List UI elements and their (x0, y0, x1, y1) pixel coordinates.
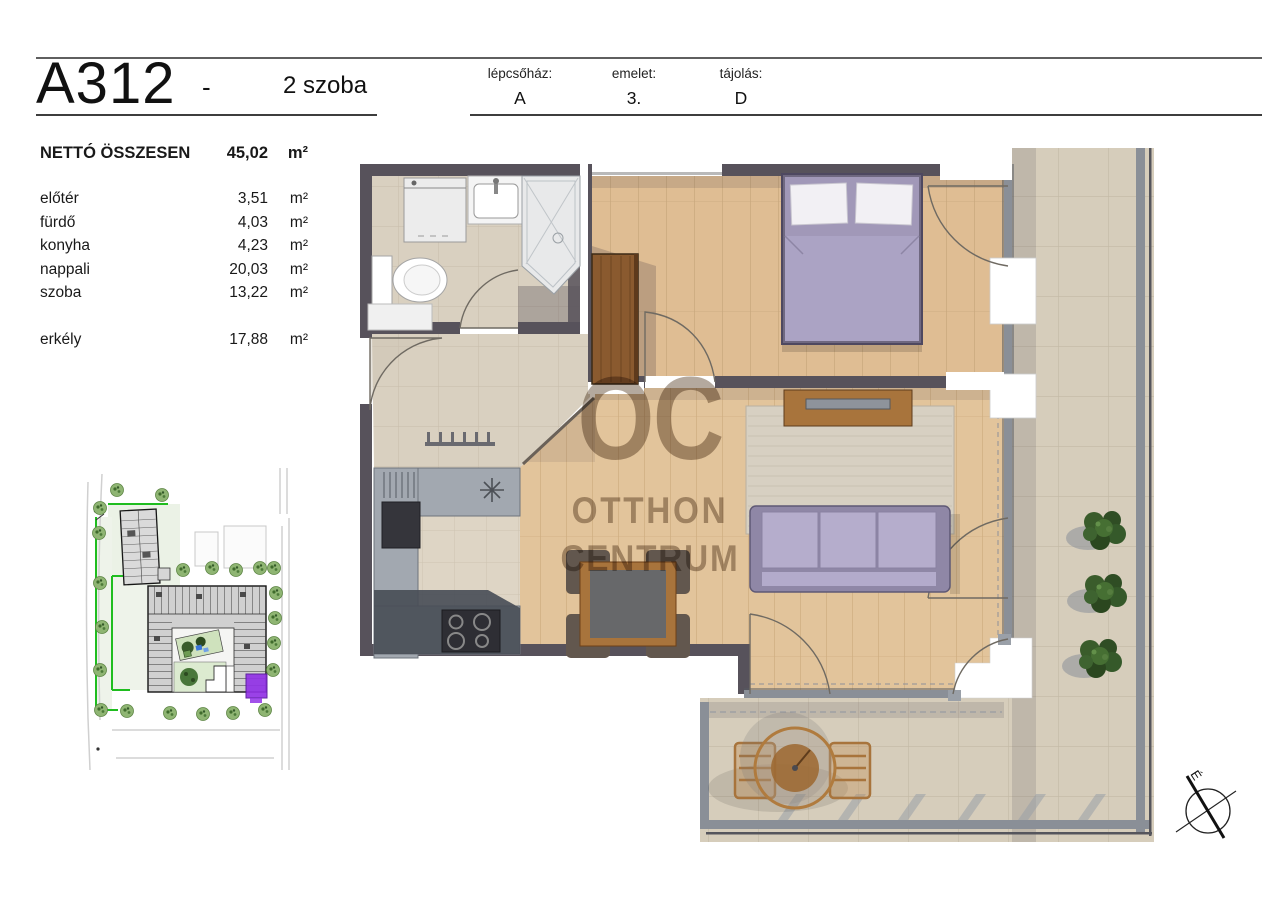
area-row-nappali: nappali 20,03 m² (40, 258, 308, 282)
table-spacer (40, 166, 308, 187)
area-total-value: 45,02 (206, 140, 268, 166)
room-value: 4,03 (206, 211, 268, 235)
room-name: konyha (40, 234, 206, 258)
field-orientation: tájolás: D (680, 66, 802, 109)
room-value: 3,51 (206, 187, 268, 211)
room-value: 4,23 (206, 234, 268, 258)
room-unit: m² (268, 258, 308, 282)
dining-set (566, 550, 690, 658)
stove (442, 610, 500, 652)
room-name: erkély (40, 328, 206, 352)
radiator (425, 442, 495, 446)
field-orientation-label: tájolás: (680, 66, 802, 81)
soundbar (806, 399, 890, 409)
floor-plan (358, 146, 1160, 850)
pillow (855, 183, 912, 225)
header-rule-title (36, 114, 377, 116)
room-name: szoba (40, 281, 206, 305)
north-arrow-compass: É (1160, 740, 1286, 910)
title-separator: - (202, 72, 211, 103)
area-total-label: NETTÓ ÖSSZESEN (40, 140, 206, 166)
bathroom-cabinet (368, 304, 432, 330)
area-row-furdo: fürdő 4,03 m² (40, 211, 308, 235)
table-spacer (40, 305, 308, 328)
room-value: 17,88 (206, 328, 268, 352)
pillow (790, 183, 847, 225)
room-value: 13,22 (206, 281, 268, 305)
area-total-unit: m² (268, 140, 308, 166)
room-unit: m² (268, 234, 308, 258)
wardrobe (592, 254, 638, 384)
field-staircase-label: lépcsőház: (459, 66, 581, 81)
area-row-eloter: előtér 3,51 m² (40, 187, 308, 211)
double-bed (782, 174, 922, 352)
room-unit: m² (268, 187, 308, 211)
neighbor-buildings (195, 526, 266, 568)
field-staircase-value: A (459, 88, 581, 109)
area-row-konyha: konyha 4,23 m² (40, 234, 308, 258)
compass-cross-line (1176, 791, 1236, 832)
room-unit: m² (268, 281, 308, 305)
map-dot (96, 747, 99, 750)
room-name: nappali (40, 258, 206, 282)
area-row-szoba: szoba 13,22 m² (40, 281, 308, 305)
building-a-block (120, 509, 160, 585)
room-value: 20,03 (206, 258, 268, 282)
annex-building (158, 568, 170, 580)
unit-code: A312 (36, 58, 175, 110)
sofa-cushion (820, 512, 876, 568)
field-staircase: lépcsőház: A (459, 66, 581, 109)
field-floor-value: 3. (573, 88, 695, 109)
header-rule-top (36, 57, 1262, 59)
courtyard-garden (174, 662, 226, 692)
header-rule-fields (470, 114, 1262, 116)
north-arrow (1187, 776, 1224, 838)
sofa (750, 506, 960, 594)
room-name: előtér (40, 187, 206, 211)
area-table: NETTÓ ÖSSZESEN 45,02 m² előtér 3,51 m² f… (40, 140, 308, 351)
field-orientation-value: D (680, 88, 802, 109)
toilet (372, 256, 447, 304)
area-total-row: NETTÓ ÖSSZESEN 45,02 m² (40, 140, 308, 166)
room-name: fürdő (40, 211, 206, 235)
highlighted-unit (246, 674, 267, 703)
sofa-cushion (762, 512, 818, 568)
tv-cabinet (784, 390, 912, 426)
room-unit: m² (268, 211, 308, 235)
unit-type: 2 szoba (283, 72, 367, 100)
room-unit: m² (268, 328, 308, 352)
field-floor-label: emelet: (573, 66, 695, 81)
site-plan-map (84, 468, 296, 780)
sofa-cushion (878, 512, 936, 568)
bathroom-sink (468, 176, 524, 224)
floorplan-sheet: A312 - 2 szoba lépcsőház: A emelet: 3. t… (0, 0, 1286, 910)
area-row-erkely: erkély 17,88 m² (40, 328, 308, 352)
field-floor: emelet: 3. (573, 66, 695, 109)
